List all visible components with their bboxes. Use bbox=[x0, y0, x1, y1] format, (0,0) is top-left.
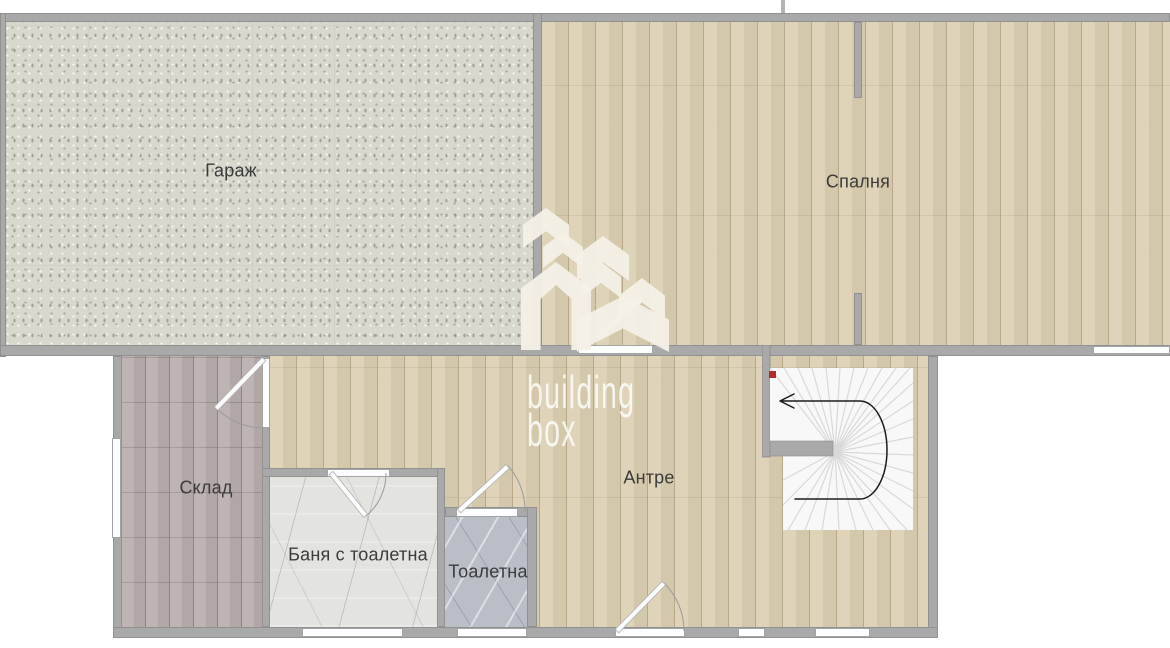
room-label-storage: Склад bbox=[179, 478, 232, 499]
room-label-toilet: Тоалетна bbox=[448, 562, 527, 583]
door-storage bbox=[214, 357, 266, 428]
floor-plan: building box Гараж Спалня Склад Баня с т… bbox=[0, 0, 1170, 648]
room-label-garage: Гараж bbox=[205, 161, 257, 182]
door-toilet bbox=[457, 465, 525, 513]
room-label-bathroom: Баня с тоалетна bbox=[288, 545, 428, 566]
door-bathroom bbox=[329, 471, 386, 517]
door-entrance bbox=[615, 581, 684, 632]
room-label-bedroom: Спалня bbox=[826, 172, 890, 193]
watermark-logo bbox=[515, 200, 680, 355]
watermark-brand-line2: box bbox=[527, 410, 577, 450]
room-label-hallway: Антре bbox=[623, 468, 674, 489]
